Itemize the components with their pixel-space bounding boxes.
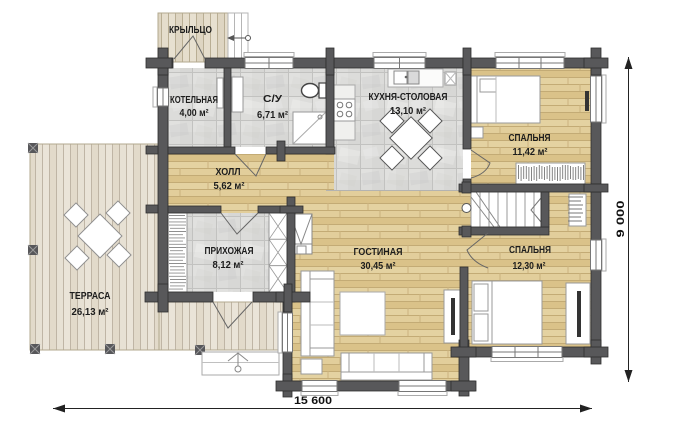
svg-text:5,62 м²: 5,62 м² bbox=[214, 181, 246, 192]
svg-text:8,12 м²: 8,12 м² bbox=[213, 260, 245, 271]
svg-text:ТЕРРАСА: ТЕРРАСА bbox=[70, 290, 111, 302]
svg-text:СПАЛЬНЯ: СПАЛЬНЯ bbox=[509, 244, 551, 256]
svg-text:30,45 м²: 30,45 м² bbox=[361, 261, 397, 272]
svg-text:26,13 м²: 26,13 м² bbox=[72, 307, 110, 318]
svg-text:ХОЛЛ: ХОЛЛ bbox=[216, 166, 241, 178]
svg-text:КОТЕЛЬНАЯ: КОТЕЛЬНАЯ bbox=[170, 94, 218, 106]
svg-text:ПРИХОЖАЯ: ПРИХОЖАЯ bbox=[205, 245, 254, 257]
svg-text:12,30 м²: 12,30 м² bbox=[513, 261, 547, 272]
svg-text:ГОСТИНАЯ: ГОСТИНАЯ bbox=[354, 246, 403, 258]
svg-text:КУХНЯ-СТОЛОВАЯ: КУХНЯ-СТОЛОВАЯ bbox=[369, 91, 448, 103]
svg-text:6,71 м²: 6,71 м² bbox=[257, 110, 289, 121]
svg-text:С/У: С/У bbox=[263, 93, 283, 105]
svg-text:15 600: 15 600 bbox=[294, 395, 332, 407]
svg-text:13,10 м²: 13,10 м² bbox=[390, 106, 427, 117]
svg-text:9 000: 9 000 bbox=[615, 201, 627, 238]
svg-text:11,42 м²: 11,42 м² bbox=[513, 147, 549, 158]
svg-text:СПАЛЬНЯ: СПАЛЬНЯ bbox=[509, 132, 551, 144]
svg-text:КРЫЛЬЦО: КРЫЛЬЦО bbox=[169, 24, 212, 36]
svg-text:4,00 м²: 4,00 м² bbox=[180, 108, 210, 119]
